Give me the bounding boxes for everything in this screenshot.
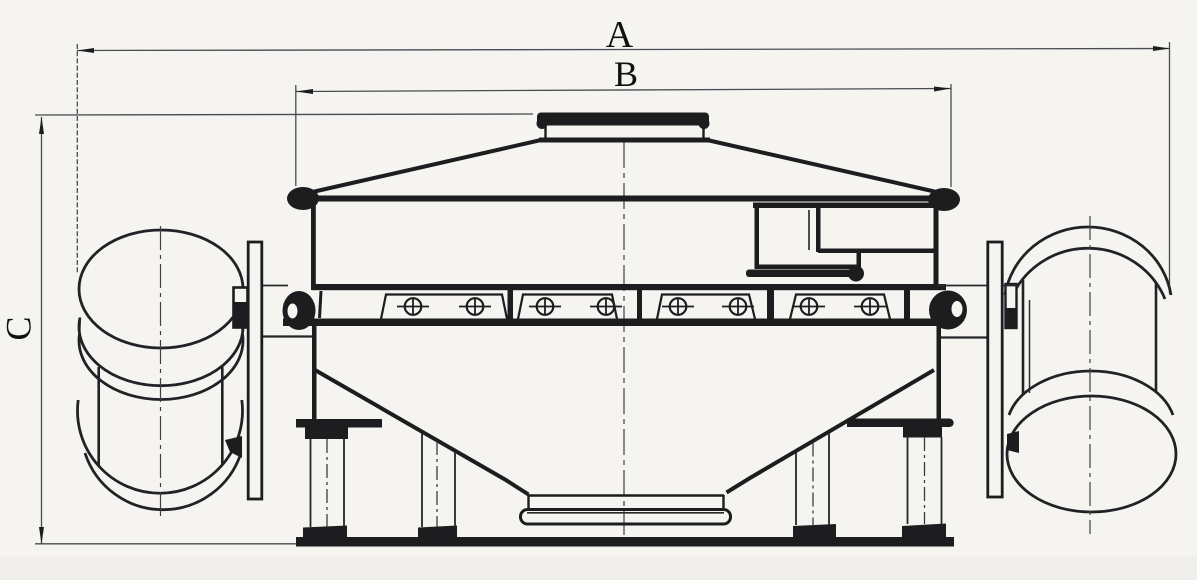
svg-text:C: C — [0, 316, 39, 340]
svg-text:B: B — [614, 54, 638, 94]
svg-text:A: A — [606, 14, 634, 56]
